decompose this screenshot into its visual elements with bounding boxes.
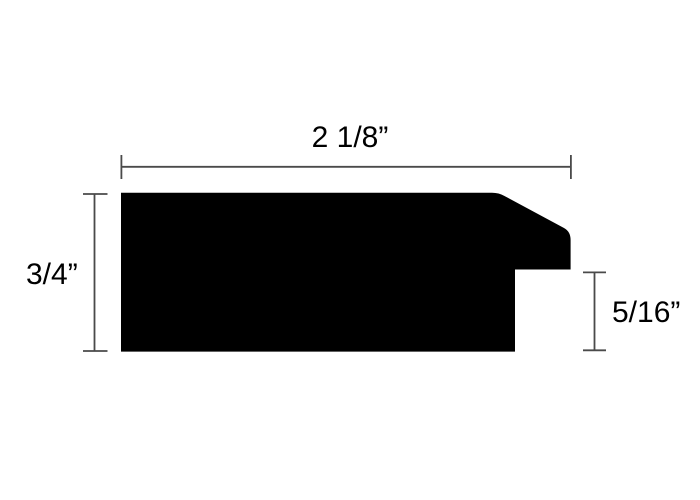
svg-text:5/16”: 5/16” <box>612 296 680 329</box>
svg-text:2 1/8”: 2 1/8” <box>312 121 389 154</box>
svg-text:3/4”: 3/4” <box>26 258 78 291</box>
